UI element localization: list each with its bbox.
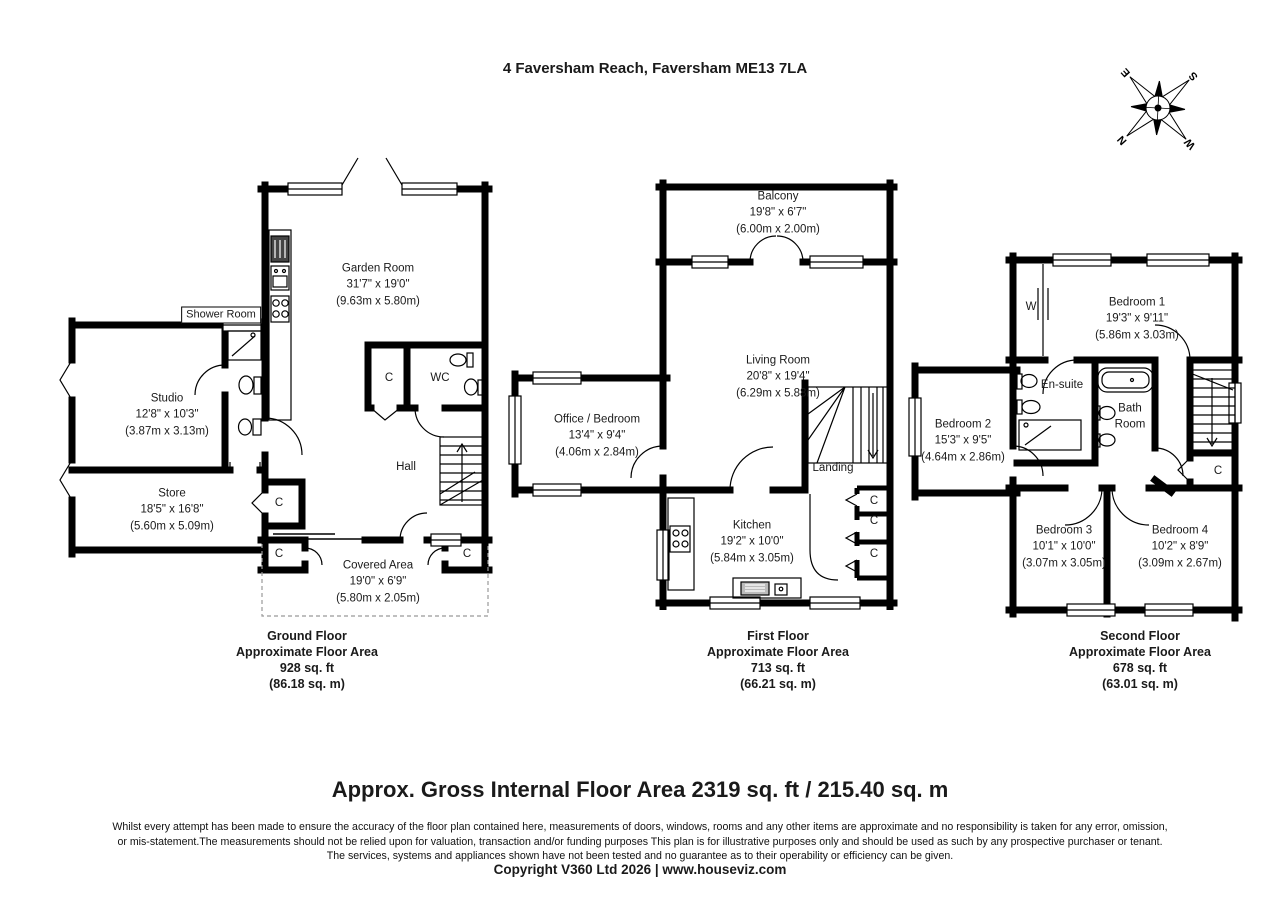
room-label-wc: WC bbox=[430, 372, 449, 384]
room-label-store: Store 18'5" x 16'8" (5.60m x 5.09m) bbox=[130, 486, 214, 535]
ground-windows bbox=[223, 183, 461, 546]
first-floor-plan bbox=[505, 178, 900, 610]
disclaimer-line-1: Whilst every attempt has been made to en… bbox=[80, 820, 1200, 835]
room-label-bedroom2: Bedroom 2 15'3" x 9'5" (4.64m x 2.86m) bbox=[921, 417, 1005, 466]
room-label-shower-room: Shower Room bbox=[181, 307, 261, 324]
room-label-office-bedroom: Office / Bedroom 13'4" x 9'4" (4.06m x 2… bbox=[554, 412, 640, 461]
kitchen-counter-icon bbox=[269, 230, 291, 420]
room-label-bathroom: Bath Room bbox=[1104, 401, 1156, 434]
floorplan-page: 4 Faversham Reach, Faversham ME13 7LA N … bbox=[0, 0, 1280, 905]
second-stairs-icon bbox=[1190, 370, 1235, 450]
closet-label: C bbox=[870, 548, 878, 560]
room-label-studio: Studio 12'8" x 10'3" (3.87m x 3.13m) bbox=[125, 391, 209, 440]
wc-toilet-icon bbox=[450, 353, 473, 367]
stairs-icon bbox=[440, 437, 485, 505]
wardrobe-label: W bbox=[1026, 301, 1037, 313]
room-label-bedroom3: Bedroom 3 10'1" x 10'0" (3.07m x 3.05m) bbox=[1022, 523, 1106, 572]
ensuite-toilet-icon bbox=[1017, 400, 1040, 414]
room-label-covered-area: Covered Area 19'0" x 6'9" (5.80m x 2.05m… bbox=[336, 558, 420, 607]
room-label-hall: Hall bbox=[396, 461, 416, 473]
wardrobe-icon bbox=[1038, 264, 1048, 356]
ensuite-shower-icon bbox=[1019, 420, 1081, 450]
first-floor-caption: First Floor Approximate Floor Area 713 s… bbox=[707, 628, 849, 692]
page-title: 4 Faversham Reach, Faversham ME13 7LA bbox=[503, 60, 807, 77]
room-label-bedroom4: Bedroom 4 10'2" x 8'9" (3.09m x 2.67m) bbox=[1138, 523, 1222, 572]
room-label-bedroom1: Bedroom 1 19'3" x 9'11" (5.86m x 3.03m) bbox=[1095, 295, 1179, 344]
closet-label: C bbox=[463, 548, 471, 560]
ground-floor-caption: Ground Floor Approximate Floor Area 928 … bbox=[236, 628, 378, 692]
compass-s: S bbox=[1187, 69, 1201, 82]
closet-label: C bbox=[385, 372, 393, 384]
wc-sink-icon bbox=[465, 379, 485, 395]
closet-label: C bbox=[870, 495, 878, 507]
gross-area-summary: Approx. Gross Internal Floor Area 2319 s… bbox=[332, 777, 949, 803]
closet-label: C bbox=[870, 515, 878, 527]
copyright-text: Copyright V360 Ltd 2026 | www.houseviz.c… bbox=[494, 862, 787, 877]
ground-doors bbox=[60, 158, 445, 565]
second-floor-caption: Second Floor Approximate Floor Area 678 … bbox=[1069, 628, 1211, 692]
room-label-kitchen: Kitchen 19'2" x 10'0" (5.84m x 3.05m) bbox=[710, 518, 794, 567]
bath-icon bbox=[1098, 368, 1153, 392]
room-label-garden-room: Garden Room 31'7" x 19'0" (9.63m x 5.80m… bbox=[336, 261, 420, 310]
room-label-living-room: Living Room 20'8" x 19'4" (6.29m x 5.88m… bbox=[736, 353, 820, 402]
ensuite-sink-icon bbox=[1017, 374, 1037, 389]
closet-label: C bbox=[275, 497, 283, 509]
compass-rose-icon: N E S W bbox=[1098, 58, 1218, 158]
second-doors bbox=[1013, 325, 1190, 525]
closet-label: C bbox=[1214, 465, 1222, 477]
first-walls bbox=[515, 183, 894, 607]
room-label-balcony: Balcony 19'8" x 6'7" (6.00m x 2.00m) bbox=[736, 189, 820, 238]
disclaimer-text: Whilst every attempt has been made to en… bbox=[80, 820, 1200, 864]
closet-label: C bbox=[275, 548, 283, 560]
room-label-landing: Landing bbox=[813, 462, 854, 474]
shower-icon bbox=[228, 331, 261, 360]
toilet-icon bbox=[239, 419, 262, 435]
room-label-ensuite: En-suite bbox=[1041, 379, 1083, 391]
sink-icon bbox=[239, 376, 261, 394]
disclaimer-line-2: or mis-statement.The measurements should… bbox=[80, 835, 1200, 850]
